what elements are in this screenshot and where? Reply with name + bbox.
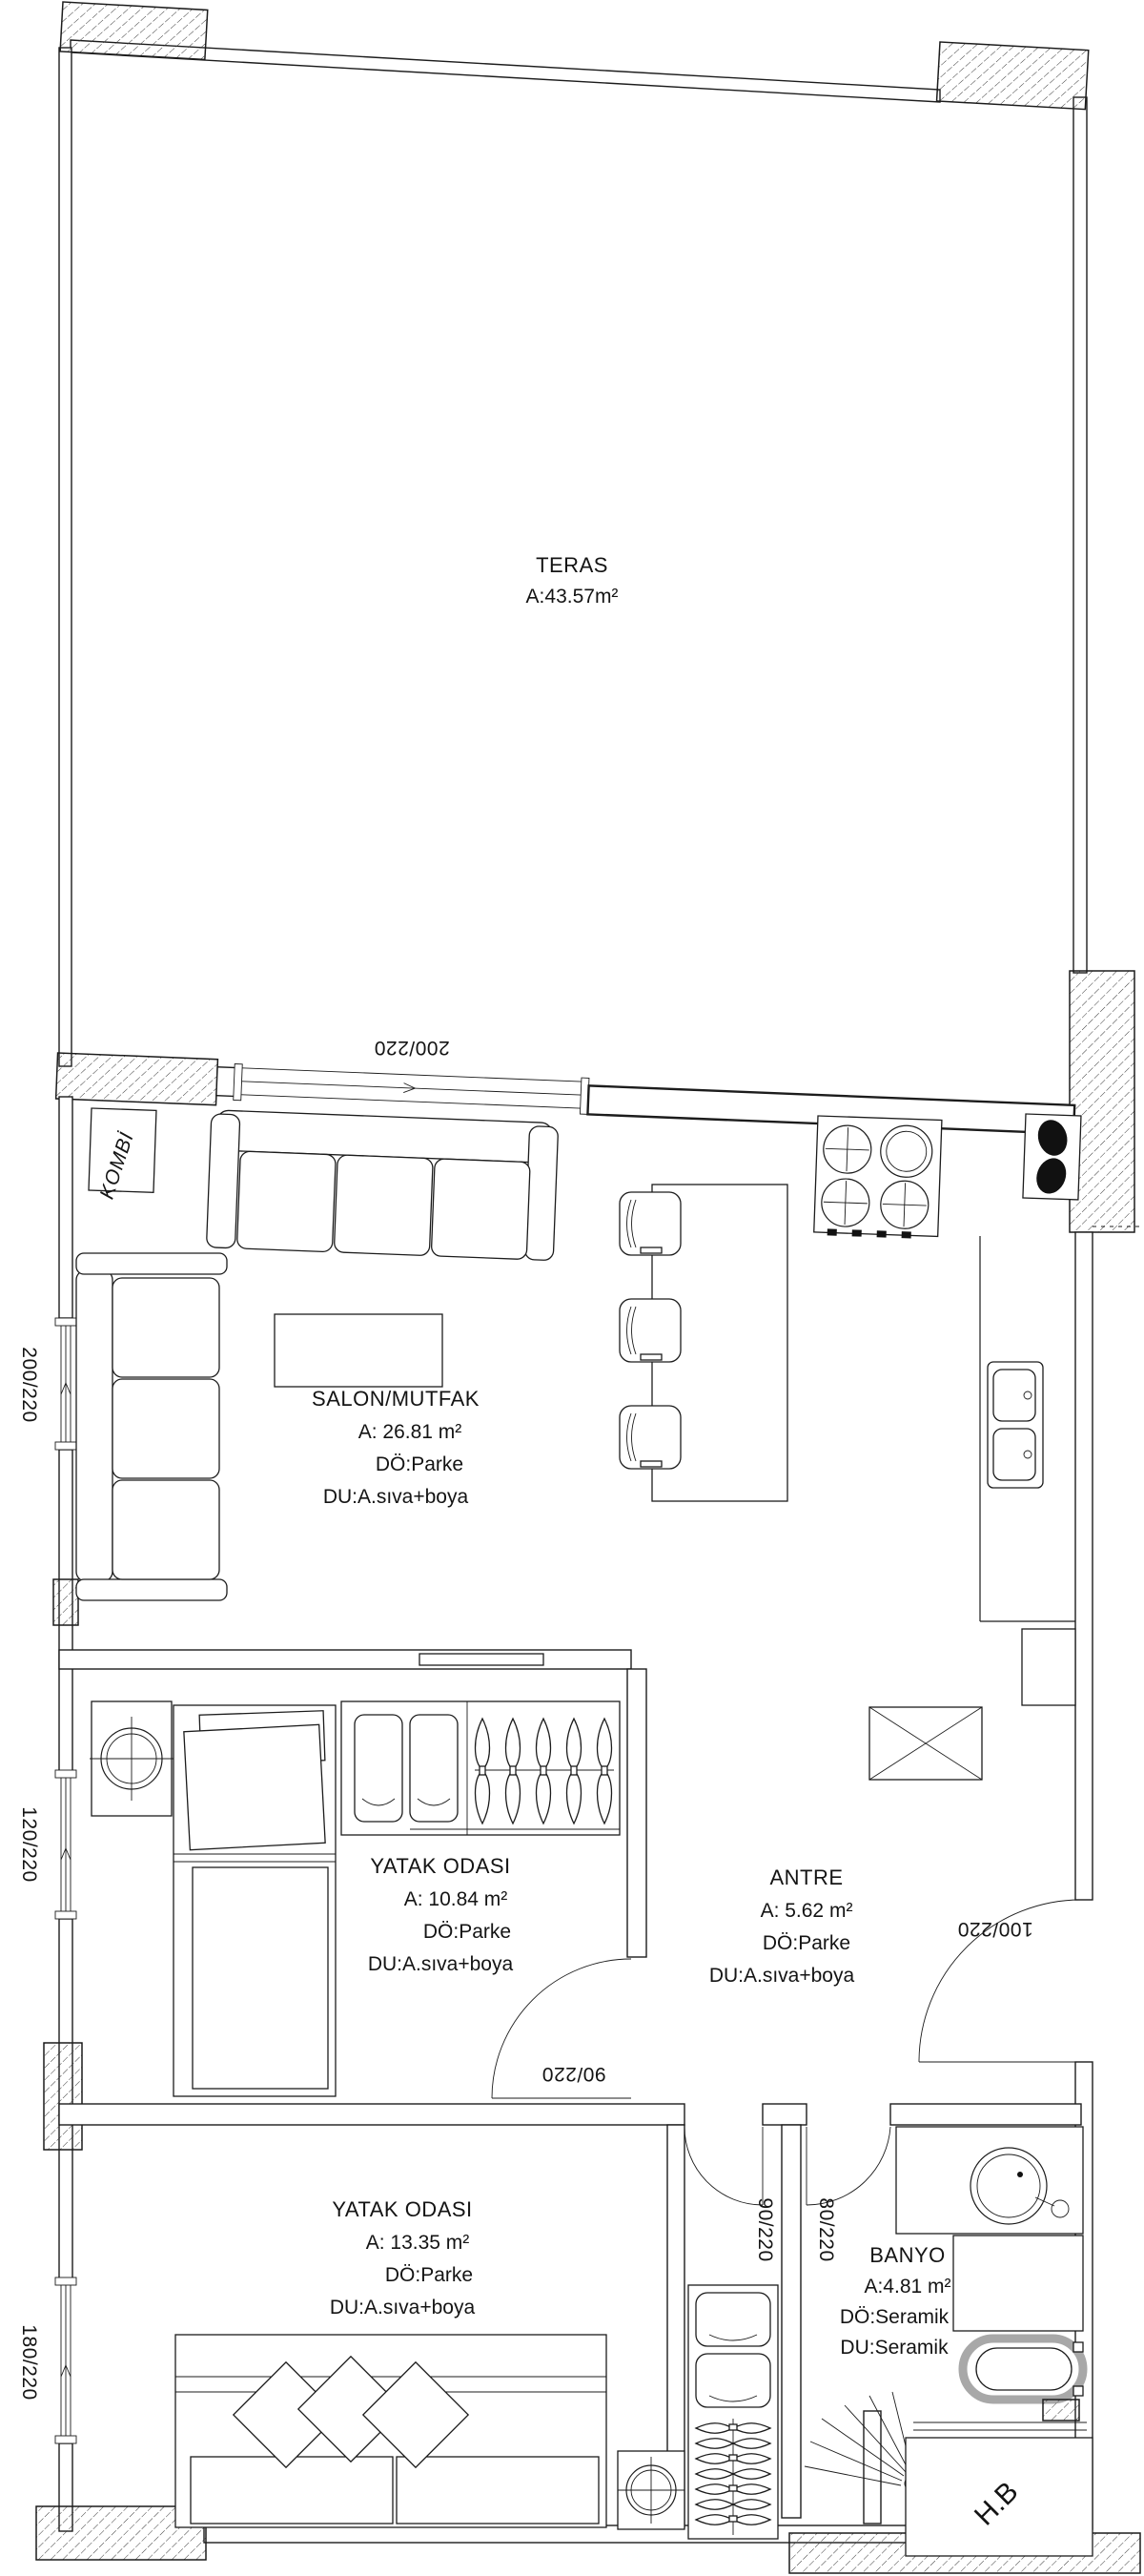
floor-plan-drawing: TERAS A:43.57m² 200/220 KOMBİ [0,0,1144,2576]
kitchen-sink [988,1362,1043,1488]
terrace: TERAS A:43.57m² [59,2,1134,1232]
bedroom1-floor: DÖ:Parke [423,1921,511,1943]
hall-closet [688,2285,778,2539]
toilet [963,2339,1083,2400]
salon-bedroom1-wall [59,1650,631,1669]
coffee-table [275,1314,442,1387]
right-wall-seg1 [1075,1232,1093,1900]
bedroom1-window-dim: 120/220 [18,1806,40,1882]
antre-name: ANTRE [769,1865,843,1889]
bathroom-left-wall [782,2125,801,2518]
bedroom2-floor: DÖ:Parke [385,2264,473,2286]
bathroom-door [807,2127,890,2205]
door-stub-wall [763,2104,807,2125]
left-wall-hatch-mid [44,2043,82,2150]
bedroom1-door-dim: 90/220 [541,2063,605,2085]
banyo-area: A:4.81 m² [864,2276,950,2298]
bed-single [174,1705,336,2096]
banyo-floor: DÖ:Seramik [840,2306,950,2328]
bedroom2-door [684,2127,763,2205]
banyo-name: BANYO [869,2243,946,2267]
column-hatch-top-left [60,2,208,59]
salon-mutfak: SALON/MUTFAK A: 26.81 m² DÖ:Parke DU:A.s… [76,1110,1081,1780]
bedroom-1: YATAK ODASI A: 10.84 m² DÖ:Parke DU:A.sı… [90,1701,620,2096]
hb-shaft: H.B [906,2422,1093,2556]
dining-chair-3 [620,1406,681,1469]
crossed-cabinet [869,1707,982,1780]
antre-area: A: 5.62 m² [761,1900,853,1922]
terrace-window [234,1063,589,1114]
wall-niche [419,1654,543,1665]
wardrobe-1 [341,1701,620,1835]
nightstand-2 [618,2451,684,2529]
bedroom2-door-dim: 90/220 [754,2197,776,2261]
sofa-top [206,1110,558,1261]
bathroom-top-wall [890,2104,1081,2125]
antre-floor: DÖ:Parke [763,1932,850,1954]
salon-window-dim: 200/220 [18,1347,40,1422]
sofa-left [76,1253,227,1600]
bedroom1-area: A: 10.84 m² [404,1888,508,1910]
bedroom2-window-dim: 180/220 [18,2324,40,2400]
entry-door-dim: 100/220 [957,1918,1032,1940]
bedroom1-window [55,1770,76,1919]
column-hatch-top-right [937,42,1089,110]
bedroom2-area: A: 13.35 m² [366,2232,470,2254]
bedroom1-right-wall [627,1669,646,1957]
salon-floor: DÖ:Parke [376,1453,463,1475]
antre-wall: DU:A.sıva+boya [709,1965,855,1987]
counter-appliance [1022,1629,1075,1705]
bedroom2-name: YATAK ODASI [332,2197,472,2221]
bed-double [175,2335,606,2527]
column-hatch-right-mid [1070,971,1134,1232]
kitchen-counter [980,1236,1075,1705]
floor-drain [1043,2400,1079,2421]
bathroom: BANYO A:4.81 m² DÖ:Seramik DU:Seramik [805,2127,1083,2490]
salon-name: SALON/MUTFAK [312,1387,480,1411]
shower-tray [953,2236,1083,2331]
bedroom1-wall: DU:A.sıva+boya [368,1953,514,1975]
bedroom2-top-wall [59,2104,684,2125]
terrace-right-wall [1073,97,1087,973]
salon-wall: DU:A.sıva+boya [323,1486,469,1508]
nightstand-1 [90,1701,174,1816]
bathroom-door-dim: 80/220 [815,2197,837,2261]
terrace-left-wall [59,48,71,1066]
shower-spray [805,2392,918,2490]
washbasin [896,2127,1083,2234]
bedroom2-window [55,2277,76,2443]
wall-hatch-top-left [56,1053,218,1105]
terrace-window-dim: 200/220 [374,1037,449,1059]
salon-area: A: 26.81 m² [358,1421,462,1443]
bedroom1-name: YATAK ODASI [370,1854,510,1878]
bedroom2-wall: DU:A.sıva+boya [330,2297,476,2318]
left-wall-seg1 [59,1097,72,1318]
stove [814,1116,942,1239]
dining-chair-2 [620,1299,681,1362]
kitchen-dark-sink [1023,1114,1081,1200]
salon-window [55,1318,76,1450]
banyo-wall: DU:Seramik [840,2337,949,2359]
terrace-name: TERAS [536,553,608,577]
antre: ANTRE A: 5.62 m² DÖ:Parke DU:A.sıva+boya [709,1865,855,1987]
terrace-area: A:43.57m² [526,586,619,608]
dining-chair-1 [620,1192,681,1255]
floor-plan-page: TERAS A:43.57m² 200/220 KOMBİ [0,0,1144,2576]
bedroom-2: YATAK ODASI A: 13.35 m² DÖ:Parke DU:A.sı… [175,2197,684,2529]
left-wall-hatch-small [53,1579,78,1625]
shower-stub-wall [864,2411,881,2524]
